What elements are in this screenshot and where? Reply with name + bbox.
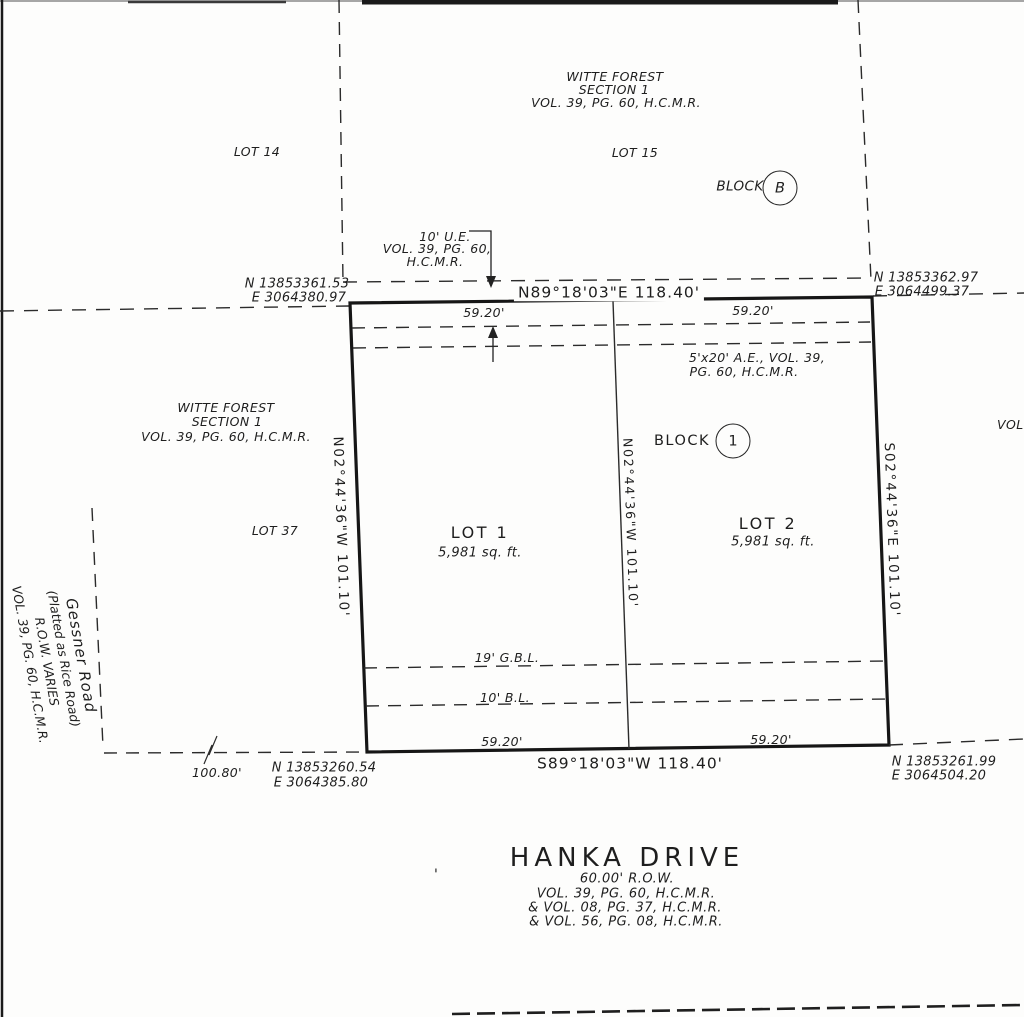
corner-nw-easting: E 3064380.97 xyxy=(252,292,347,305)
lot-boundary-line xyxy=(350,297,889,752)
north-subdivision-ref: VOL. 39, PG. 60, H.C.M.R. xyxy=(531,97,701,110)
south-half-right-distance: 59.20' xyxy=(750,734,792,747)
south-line-extension-west-dashed xyxy=(104,752,367,753)
lot2-area: 5,981 sq. ft. xyxy=(731,536,815,549)
north-boundary-bearing: N89°18'03"E 118.40' xyxy=(514,285,704,301)
ue-note-line3: H.C.M.R. xyxy=(407,256,464,269)
ue-arrowhead-down xyxy=(486,276,496,288)
north-line-extension-west-dashed xyxy=(0,306,349,311)
lot1-name: LOT 1 xyxy=(451,525,509,541)
lot1-area: 5,981 sq. ft. xyxy=(438,547,522,560)
block-b-circle: B xyxy=(763,171,798,206)
lot14-15-division-dashed xyxy=(339,0,343,282)
easement-dashed-line-2 xyxy=(353,342,871,348)
block-1-label: BLOCK xyxy=(654,434,710,449)
line-break-symbol xyxy=(204,736,217,764)
corner-sw-easting: E 3064385.80 xyxy=(274,777,369,790)
rear-lot-line-dashed xyxy=(343,278,871,282)
street-ref2: & VOL. 08, PG. 37, H.C.M.R. xyxy=(528,902,722,915)
block-b-label: BLOCK xyxy=(716,180,763,194)
street-name: HANKA DRIVE xyxy=(510,845,744,871)
corner-nw-northing: N 13853361.53 xyxy=(245,278,350,291)
plat-survey-page: WITTE FOREST SECTION 1 VOL. 39, PG. 60, … xyxy=(0,0,1024,1017)
ae-note-line1: 5'x20' A.E., VOL. 39, xyxy=(689,352,825,365)
lot15-label: LOT 15 xyxy=(612,147,658,160)
lot2-name: LOT 2 xyxy=(739,516,797,532)
corner-se-easting: E 3064504.20 xyxy=(892,770,987,783)
block-1-id: 1 xyxy=(728,433,737,449)
south-half-left-distance: 59.20' xyxy=(481,736,523,749)
corner-sw-northing: N 13853260.54 xyxy=(272,762,377,775)
block-b-id: B xyxy=(775,180,785,196)
corner-ne-easting: E 3064499.37 xyxy=(875,286,970,299)
west-subdivision-ref: VOL. 39, PG. 60, H.C.M.R. xyxy=(141,431,311,444)
ae-note-line2: PG. 60, H.C.M.R. xyxy=(690,366,799,379)
corner-se-northing: N 13853261.99 xyxy=(892,756,997,769)
north-half-left-distance: 59.20' xyxy=(463,307,505,320)
block-1-circle: 1 xyxy=(716,424,751,459)
south-line-extension-east-dashed xyxy=(889,739,1024,745)
west-subdivision-section: SECTION 1 xyxy=(192,416,263,429)
stray-scan-mark: ' xyxy=(434,868,438,882)
north-half-right-distance: 59.20' xyxy=(732,305,774,318)
west-subdivision-name: WITTE FOREST xyxy=(177,402,274,415)
easement-dashed-line-1 xyxy=(352,322,870,328)
hanka-south-row-dashed xyxy=(452,1005,1024,1014)
lot15-east-division-dashed xyxy=(858,0,871,280)
garage-building-line-label: 19' G.B.L. xyxy=(475,652,539,665)
building-line-label: 10' B.L. xyxy=(480,692,530,705)
street-ref3: & VOL. 56, PG. 08, H.C.M.R. xyxy=(529,916,723,929)
lot14-label: LOT 14 xyxy=(234,146,280,159)
lot37-label: LOT 37 xyxy=(252,525,298,538)
street-row: 60.00' R.O.W. xyxy=(580,873,674,886)
street-ref1: VOL. 39, PG. 60, H.C.M.R. xyxy=(537,888,716,901)
south-boundary-bearing: S89°18'03"W 118.40' xyxy=(537,756,723,772)
corner-ne-northing: N 13853362.97 xyxy=(874,272,979,285)
easement-arrowhead-up xyxy=(488,326,498,338)
right-edge-clipped-text: VOL. xyxy=(997,419,1024,432)
gessner-frontage-distance: 100.80' xyxy=(192,767,242,780)
